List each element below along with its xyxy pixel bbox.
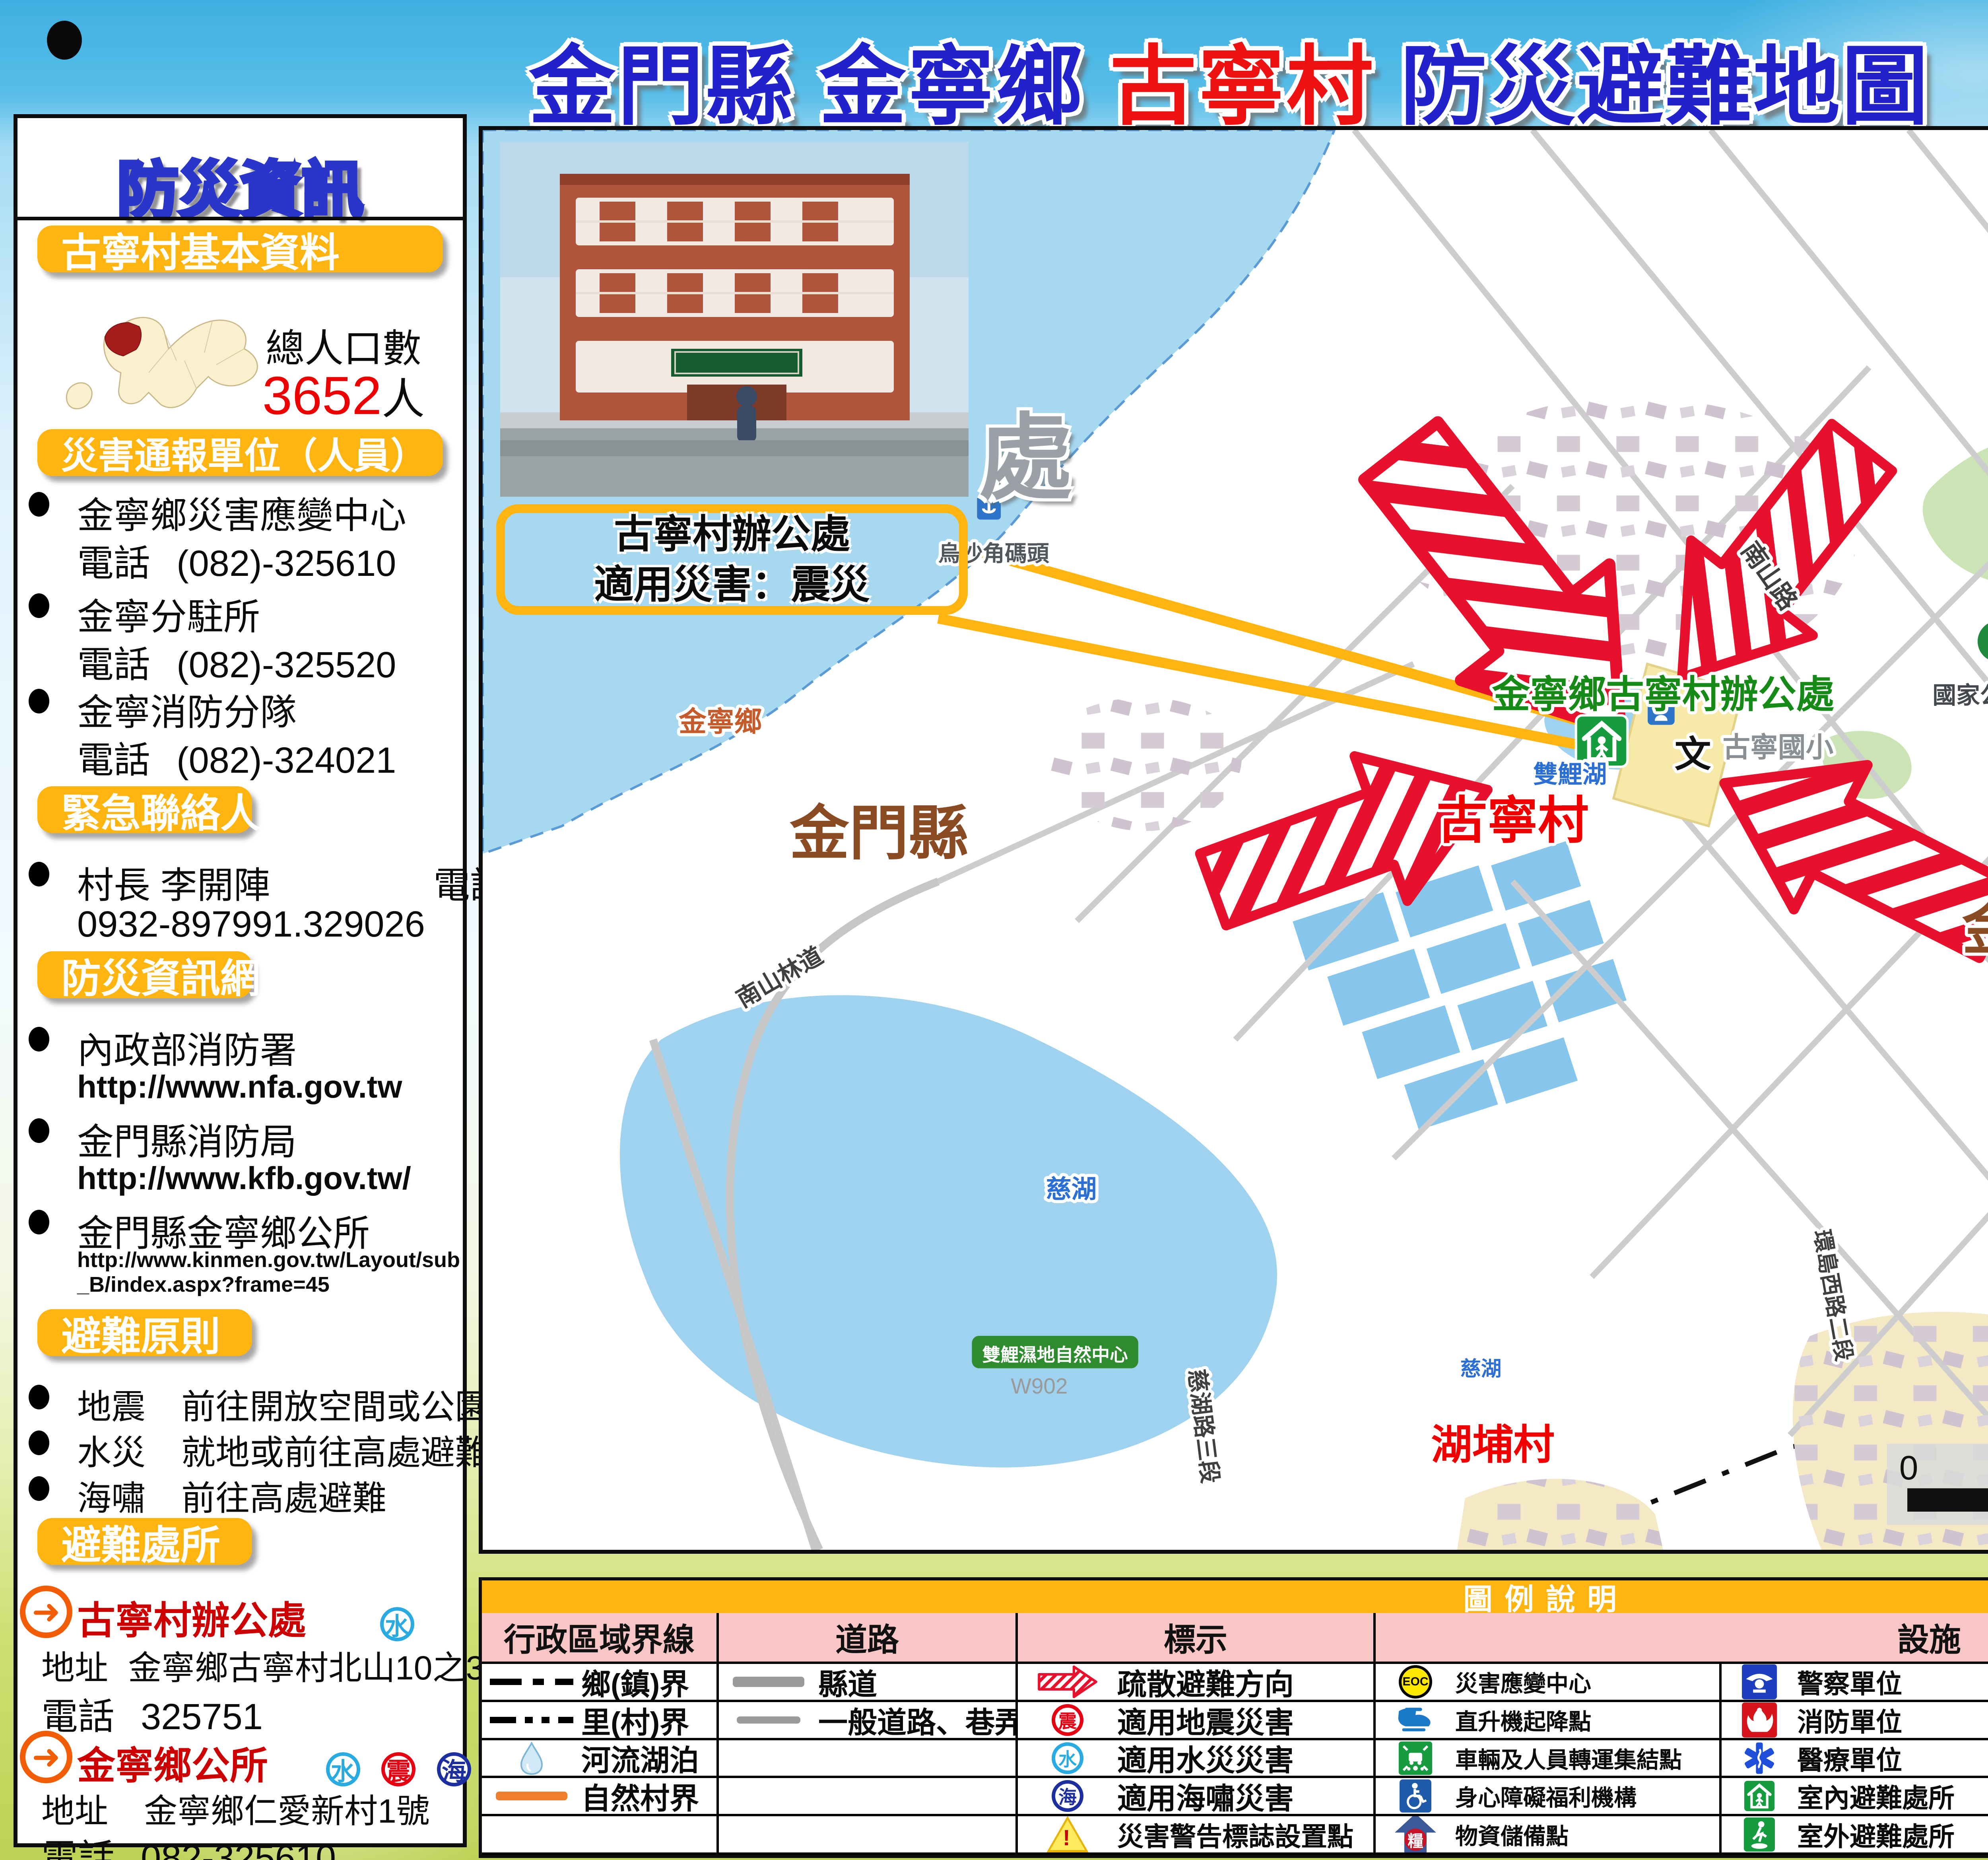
label-county-left: 金門縣 (789, 800, 968, 867)
phone-label: 電話 (41, 1687, 141, 1740)
callout-hazard: 適用災害：震災 (594, 560, 870, 610)
legend-header-roads: 道路 (719, 1613, 1018, 1664)
warning-triangle-icon: ! (1018, 1816, 1117, 1853)
tsunami-badge: 海 (437, 1752, 471, 1786)
heliport-icon (1376, 1705, 1455, 1736)
label-village-hupu: 湖埔村 (1431, 1421, 1555, 1467)
label-lake-shuangli: 雙鯉湖 (1533, 761, 1607, 788)
scale-tick: 0 (1899, 1449, 1918, 1487)
legend-item: 鄉(鎮)界 (482, 1664, 719, 1702)
legend-item: 疏散避難方向 (1018, 1664, 1376, 1702)
population-number: 3652 (262, 365, 382, 426)
natural-village-line-icon (482, 1792, 581, 1800)
legend-title: 圖例說明 (482, 1580, 1988, 1613)
label-village-main: 古寧村 (1437, 792, 1589, 849)
label-county-right: 金門縣 (1962, 895, 1988, 962)
park-icon (1978, 621, 1988, 662)
school-mark-icon: 文 (1675, 734, 1711, 775)
local-road-icon (719, 1716, 818, 1724)
medical-icon (1722, 1741, 1797, 1775)
heading-info-web: 防災資訊網 (37, 951, 252, 998)
phone-label: 電話 (41, 1828, 141, 1860)
title-county: 金門縣 (529, 39, 819, 135)
dash-dot-dot-line-icon (482, 1717, 581, 1723)
office-photo-illustration (500, 142, 969, 497)
supplies-icon: 糧 (1376, 1816, 1455, 1855)
bullet (29, 1027, 49, 1051)
label-grid-w902: W902 (1011, 1374, 1068, 1398)
built-up-hupu (1457, 1479, 1663, 1550)
phone-number: 325751 (141, 1697, 263, 1737)
web-url: http://www.nfa.gov.tw (77, 1069, 522, 1105)
arrow-right-icon: ➜ (20, 1731, 72, 1783)
legend-item: 海 適用海嘯災害 (1018, 1778, 1376, 1816)
park-area-battle-museum (1923, 430, 1988, 586)
fire-icon (1722, 1703, 1797, 1738)
legend-item: 糧 物資儲備點 (1376, 1816, 1722, 1855)
legend-panel: 圖例說明 行政區域界線 道路 標示 設施 鄉(鎮)界 縣道 疏散避難方向 EOC… (479, 1577, 1988, 1858)
phone-number: (082)-324021 (177, 740, 396, 781)
title-maptype: 防災避難地圖 (1400, 39, 1930, 135)
shelter-name: 金寧鄉公所 (77, 1745, 268, 1787)
bullet (29, 1210, 49, 1234)
web-name: 金門縣消防局 (77, 1112, 522, 1165)
hazard-type: 水災 (77, 1434, 146, 1472)
legend-header-admin: 行政區域界線 (482, 1613, 719, 1664)
police-icon (1722, 1664, 1797, 1699)
accessible-icon (1376, 1779, 1455, 1813)
flood-badge-icon: 水 (1018, 1742, 1117, 1774)
legend-header-marks: 標示 (1018, 1613, 1376, 1664)
heading-basic-data: 古寧村基本資料 (37, 225, 443, 272)
web-name: 內政部消防署 (77, 1021, 522, 1074)
legend-cell-empty (719, 1778, 1018, 1816)
label-school: 古寧國小 (1722, 732, 1833, 763)
built-up-nanshan (1049, 697, 1242, 831)
label-wetland: 雙鯉濕地自然中心 (982, 1345, 1128, 1365)
kinmen-island-inset-map (45, 289, 268, 420)
indoor-shelter-icon (1722, 1779, 1797, 1813)
hazard-type: 海嘯 (77, 1479, 146, 1518)
population-value-row: 3652人 (240, 365, 447, 427)
report-unit-phone: 電話(082)-325610 (77, 534, 522, 587)
striped-arrow-icon (1018, 1665, 1117, 1699)
hazard-action: 前往高處避難 (181, 1479, 386, 1518)
hazard-action: 就地或前往高處避難 (181, 1434, 489, 1472)
legend-item: 直升機起降點 (1376, 1702, 1722, 1740)
shelter-address: 地址金寧鄉仁愛新村1號 (41, 1784, 487, 1833)
title-township: 金寧鄉 (819, 39, 1110, 135)
phone-label: 電話 (77, 635, 177, 688)
heading-principles: 避難原則 (37, 1309, 252, 1356)
address-label: 地址 (41, 1792, 108, 1830)
shelter-name: 古寧村辦公處 (77, 1600, 306, 1642)
person-silhouette (736, 386, 757, 442)
principle-row: 水災就地或前往高處避難 (77, 1425, 522, 1474)
sidebar-title: 防災資訊 (17, 140, 463, 229)
report-unit-phone: 電話(082)-325520 (77, 635, 522, 688)
shelter-row: 金寧鄉公所 水 震 海 (77, 1735, 522, 1790)
legend-item: 醫療單位 (1722, 1740, 1988, 1778)
report-unit-phone: 電話(082)-324021 (77, 731, 522, 783)
legend-item: 一般道路、巷弄 (719, 1702, 1018, 1740)
address-value: 金寧鄉仁愛新村1號 (144, 1792, 430, 1830)
address-label: 地址 (41, 1649, 108, 1687)
legend-item: 水 適用水災災害 (1018, 1740, 1376, 1778)
legend-header-facilities: 設施 (1376, 1613, 1988, 1664)
heading-shelters: 避難處所 (37, 1518, 252, 1565)
page-title: 金門縣 金寧鄉 古寧村 防災避難地圖 (529, 16, 1944, 142)
address-value: 金寧鄉古寧村北山10之3號 (128, 1649, 518, 1687)
web-url: http://www.kinmen.gov.tw/Layout/sub_B/in… (77, 1248, 467, 1297)
water-drop-icon (482, 1741, 581, 1775)
phone-number: 082-325610 (141, 1838, 336, 1860)
bullet (29, 593, 49, 618)
phone-number: (082)-325610 (177, 543, 396, 584)
legend-item: ! 災害警告標誌設置點 (1018, 1816, 1376, 1855)
legend-item: 室外避難處所 (1722, 1816, 1988, 1855)
legend-item: 警察單位 (1722, 1664, 1988, 1702)
label-lake-cihu: 慈湖 (1046, 1175, 1097, 1203)
web-url: http://www.kfb.gov.tw/ (77, 1160, 522, 1197)
contact-phone: 0932-897991.329026 (77, 904, 522, 945)
bullet (29, 1430, 49, 1455)
legend-item: 河流湖泊 (482, 1740, 719, 1778)
phone-label: 電話 (77, 534, 177, 587)
legend-item: 自然村界 (482, 1778, 719, 1816)
phone-number: (082)-325520 (177, 645, 396, 685)
shelter-address: 地址金寧鄉古寧村北山10之3號 (41, 1641, 487, 1689)
arrow-right-icon: ➜ (20, 1586, 72, 1638)
eoc-icon: EOC (1376, 1665, 1455, 1699)
hidden-label-char: 處 (979, 382, 1072, 517)
shelter-phone: 電話325751 (41, 1687, 487, 1740)
disaster-evacuation-map-poster: 金門縣 金寧鄉 古寧村 防災避難地圖 編號 0 (0, 0, 1988, 1860)
legend-item: 里(村)界 (482, 1702, 719, 1740)
report-unit-name: 金寧消防分隊 (77, 683, 522, 736)
sidebar-disaster-info: 防災資訊 古寧村基本資料 總人口數 3652人 災害通報單位（人員） 金寧鄉災害… (14, 114, 467, 1847)
flood-badge: 水 (380, 1607, 414, 1641)
contact-row: 村長 李開陣 電話 (77, 856, 522, 909)
bullet (29, 1476, 49, 1501)
office-callout: 古寧村辦公處 適用災害：震災 (496, 504, 968, 615)
quake-badge: 震 (381, 1752, 415, 1786)
legend-item: 消防單位 (1722, 1702, 1988, 1740)
label-lake-cihu-2: 慈湖 (1460, 1357, 1502, 1380)
report-unit-name: 金寧分駐所 (77, 587, 522, 640)
report-unit-name: 金寧鄉災害應變中心 (77, 486, 522, 539)
principle-row: 地震前往開放空間或公園避難 (77, 1379, 522, 1429)
shelter-row: 古寧村辦公處 水 (77, 1590, 522, 1645)
dash-dot-line-icon (482, 1679, 581, 1685)
legend-cell-empty (482, 1816, 719, 1855)
callout-name: 古寧村辦公處 (614, 509, 850, 560)
bullet (29, 1118, 49, 1143)
legend-item: 縣道 (719, 1664, 1018, 1702)
indoor-shelter-icon (1576, 715, 1628, 767)
label-township-left: 金寧鄉 (678, 706, 762, 737)
hazard-type: 地震 (77, 1388, 146, 1426)
quake-badge-icon: 震 (1018, 1704, 1117, 1736)
assembly-point-icon (1376, 1741, 1455, 1775)
bullet (29, 689, 49, 713)
legend-cell-empty (719, 1740, 1018, 1778)
tsunami-badge-icon: 海 (1018, 1780, 1117, 1812)
heading-emergency-contact: 緊急聯絡人 (37, 786, 252, 833)
contact-name: 村長 李開陣 (77, 865, 270, 906)
legend-table: 行政區域界線 道路 標示 設施 鄉(鎮)界 縣道 疏散避難方向 EOC 災害應變… (482, 1613, 1988, 1855)
legend-item: 身心障礙福利機構 (1376, 1778, 1722, 1816)
corner-dot-left (47, 21, 82, 60)
legend-item: EOC 災害應變中心 (1376, 1664, 1722, 1702)
bullet (29, 492, 49, 517)
legend-cell-empty (719, 1816, 1018, 1855)
bullet (29, 862, 49, 886)
legend-item: 車輛及人員轉運集結點 (1376, 1740, 1722, 1778)
lieyu-island-shape (66, 383, 92, 409)
outdoor-shelter-icon (1722, 1817, 1797, 1852)
label-national-park: 國家公園古寧頭 (1932, 682, 1988, 709)
population-unit: 人 (382, 375, 425, 423)
bullet (29, 1385, 49, 1409)
legend-item: 震 適用地震災害 (1018, 1702, 1376, 1740)
legend-item: 室內避難處所 (1722, 1778, 1988, 1816)
label-office-main: 金寧鄉古寧村辦公處 (1492, 674, 1835, 716)
heading-report-units: 災害通報單位（人員） (37, 429, 443, 476)
county-road-icon (719, 1677, 818, 1687)
flood-badge: 水 (326, 1752, 360, 1786)
shelter-phone: 電話082-325610 (41, 1828, 487, 1860)
lake-cihu (620, 995, 1277, 1467)
label-wetland-box: 雙鯉濕地自然中心 (972, 1336, 1138, 1368)
title-village: 古寧村 (1110, 39, 1400, 135)
phone-label: 電話 (77, 731, 177, 783)
